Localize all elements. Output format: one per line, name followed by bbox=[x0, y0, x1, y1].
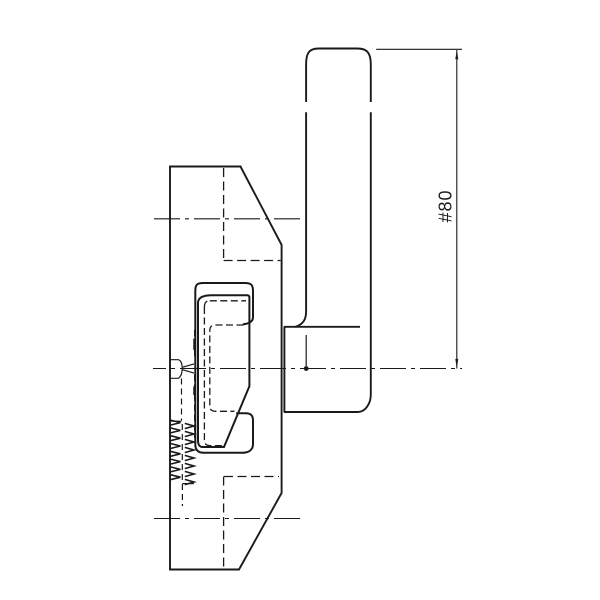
svg-text:#80: #80 bbox=[436, 189, 456, 222]
